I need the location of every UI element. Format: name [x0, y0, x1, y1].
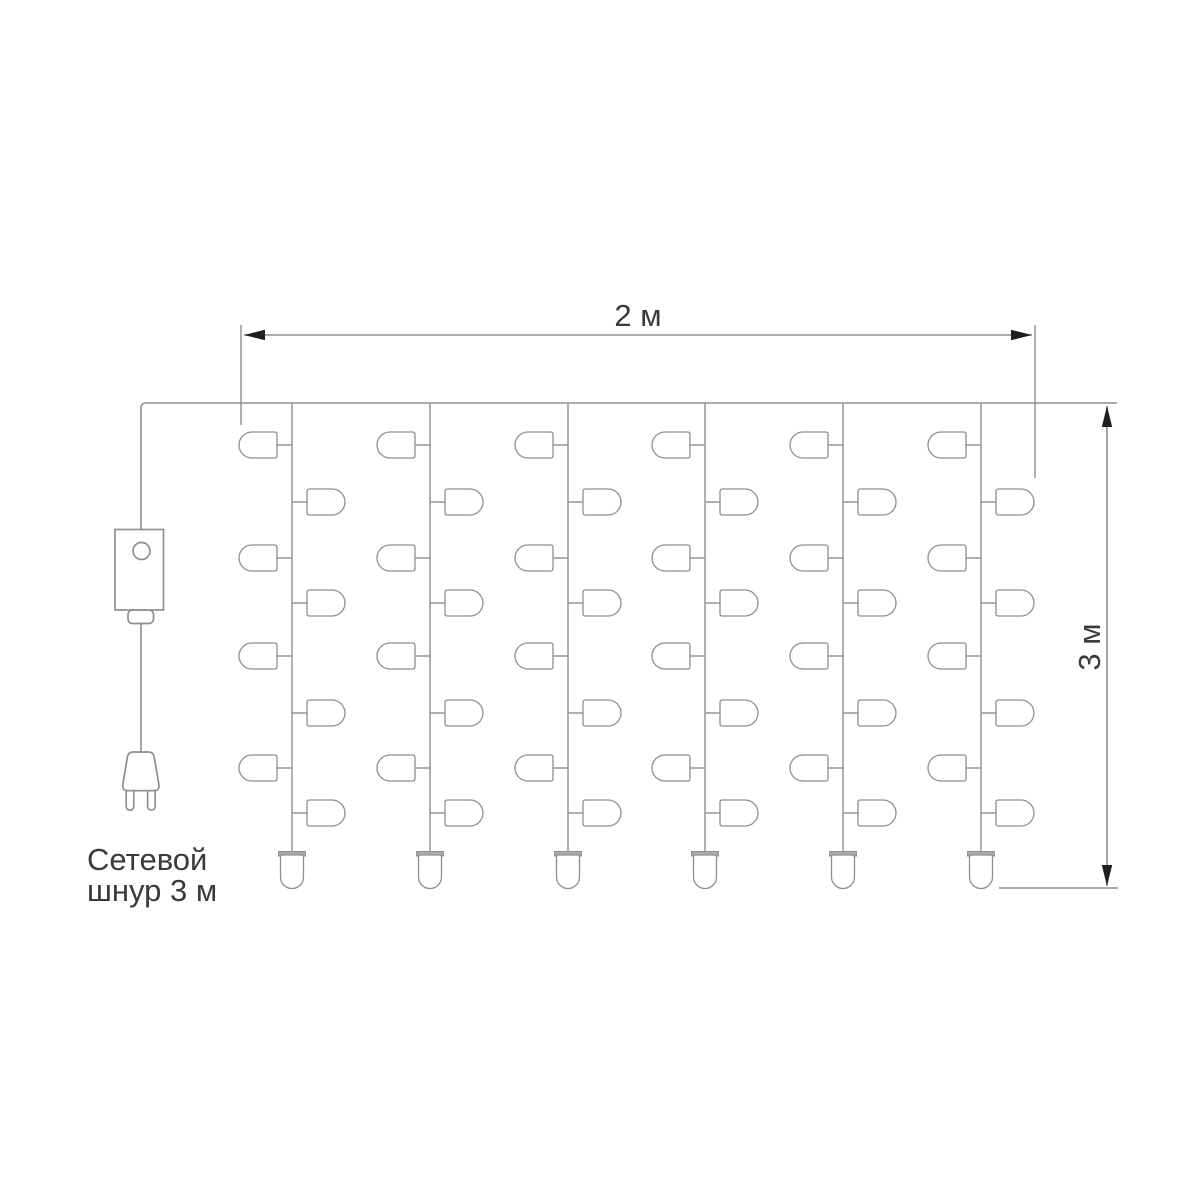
led-bulb-icon [583, 700, 621, 726]
led-bulb-icon [928, 432, 966, 458]
led-bulb-icon [307, 800, 345, 826]
led-bulb-icon [445, 489, 483, 515]
led-bulb-icon [996, 489, 1034, 515]
led-bulb-icon [307, 489, 345, 515]
end-bulb-icon [694, 855, 717, 889]
led-bulb-icon [239, 545, 277, 571]
led-bulb-icon [790, 755, 828, 781]
led-bulb-icon [720, 800, 758, 826]
led-bulb-icon [790, 545, 828, 571]
strand-1 [239, 403, 345, 889]
arrow-up-icon [1102, 406, 1112, 427]
led-bulb-icon [377, 432, 415, 458]
led-bulb-icon [858, 700, 896, 726]
controller-box [115, 530, 164, 611]
width-dimension-label: 2 м [614, 298, 661, 333]
strand-2 [377, 403, 483, 889]
led-bulb-icon [515, 643, 553, 669]
led-bulb-icon [858, 800, 896, 826]
diagram-canvas: 2 м 3 м Сетевой шнур 3 м [0, 0, 1200, 1200]
led-bulb-icon [720, 489, 758, 515]
led-bulb-icon [790, 643, 828, 669]
strand-4 [652, 403, 758, 889]
strand-6 [928, 403, 1034, 889]
end-bulb-icon [557, 855, 580, 889]
led-bulb-icon [652, 755, 690, 781]
strand-5 [790, 403, 896, 889]
led-bulb-icon [858, 489, 896, 515]
controller-connector [128, 610, 154, 624]
end-bulb-icon [970, 855, 993, 889]
end-bulb-icon [281, 855, 304, 889]
cord-label-line1: Сетевой [87, 842, 207, 877]
height-dimension-label: 3 м [1072, 623, 1107, 670]
led-bulb-icon [996, 700, 1034, 726]
cord-label-line2: шнур 3 м [87, 873, 217, 908]
end-bulb-icon [419, 855, 442, 889]
led-bulb-icon [307, 590, 345, 616]
led-bulb-icon [583, 800, 621, 826]
led-bulb-icon [307, 700, 345, 726]
led-bulb-icon [445, 800, 483, 826]
led-bulb-icon [996, 590, 1034, 616]
led-bulb-icon [652, 432, 690, 458]
led-bulb-icon [515, 755, 553, 781]
led-bulb-icon [996, 800, 1034, 826]
led-bulb-icon [239, 432, 277, 458]
led-bulb-icon [445, 700, 483, 726]
arrow-down-icon [1102, 865, 1112, 886]
led-bulb-icon [928, 755, 966, 781]
led-bulb-icon [377, 545, 415, 571]
plug-prong-left-icon [126, 791, 134, 811]
led-bulb-icon [652, 643, 690, 669]
led-bulb-icon [583, 590, 621, 616]
top-wire [141, 403, 1117, 530]
led-bulb-icon [928, 545, 966, 571]
plug-prong-right-icon [148, 791, 156, 810]
strand-3 [515, 403, 621, 889]
end-bulb-icon [832, 855, 855, 889]
plug-body-icon [123, 752, 159, 791]
led-bulb-icon [377, 643, 415, 669]
arrow-left-icon [244, 330, 265, 340]
led-bulb-icon [239, 643, 277, 669]
led-bulb-icon [515, 432, 553, 458]
led-bulb-icon [445, 590, 483, 616]
curtain-strands [239, 403, 1034, 889]
led-bulb-icon [583, 489, 621, 515]
arrow-right-icon [1011, 330, 1032, 340]
led-bulb-icon [858, 590, 896, 616]
controller-button-icon [133, 543, 150, 560]
led-curtain-diagram: 2 м 3 м Сетевой шнур 3 м [0, 0, 1200, 1200]
led-bulb-icon [720, 590, 758, 616]
cord-caption: Сетевой шнур 3 м [87, 842, 217, 908]
led-bulb-icon [790, 432, 828, 458]
led-bulb-icon [515, 545, 553, 571]
led-bulb-icon [239, 755, 277, 781]
led-bulb-icon [377, 755, 415, 781]
width-dimension: 2 м [241, 298, 1035, 478]
led-bulb-icon [928, 643, 966, 669]
led-bulb-icon [720, 700, 758, 726]
led-bulb-icon [652, 545, 690, 571]
